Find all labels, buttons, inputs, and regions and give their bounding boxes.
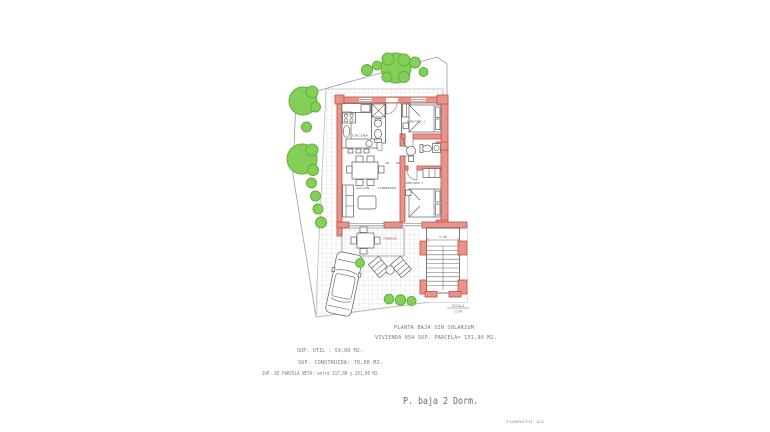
toilet2 [423, 145, 432, 152]
floor-plan-drawing: DORMITORIO 1 SALON - COMEDOR COCINA DORM… [0, 0, 770, 432]
kitchen-label: COCINA [352, 134, 368, 138]
bedroom2-label: DORMITORIO 2 [405, 181, 423, 185]
scale-note: ESCALA 1/50 [447, 304, 469, 314]
sofa [343, 185, 354, 217]
plate-label: P. baja 2 Dorm. [403, 396, 478, 407]
wall-bedroom1-south [413, 134, 441, 139]
living-label: SALON - COMEDOR [356, 186, 396, 190]
scale-value: 1/50 [454, 310, 462, 314]
sup-construida: SUP. CONSTRUIDA: 70,00 M2. [298, 360, 383, 366]
terrace-table [357, 233, 374, 248]
wardrobe2 [423, 169, 440, 178]
wall-east [441, 97, 448, 228]
dining-table [352, 162, 378, 179]
wall-hall-east-lower [400, 156, 405, 222]
terrace-label: TERRAZA [383, 237, 397, 241]
sheet-code: FORMATO A3 [506, 420, 544, 424]
annotation-block: PLANTA BAJA SIN SOLARIUM VIVIENDA 054 SU… [262, 325, 544, 424]
garden-table [386, 266, 394, 274]
coffee-table [358, 196, 376, 209]
title-line2: VIVIENDA 054 SUP. PARCELA= 151,90 M2. [375, 335, 497, 341]
toilet1 [375, 129, 382, 138]
stairs-dimension: 4,00 [439, 235, 447, 239]
washbasin2 [406, 146, 415, 155]
floor-plan-page: DORMITORIO 1 SALON - COMEDOR COCINA DORM… [0, 0, 770, 432]
sup-parcela-neta: SUP. DE PARCELA NETA: entre 117,00 y 201… [262, 371, 380, 377]
title-line1: PLANTA BAJA SIN SOLARIUM [394, 325, 475, 331]
sup-util: SUP. UTIL : 59,00 M2. [297, 348, 363, 354]
stove [343, 113, 356, 123]
washbasin1 [374, 120, 381, 127]
bedroom1-label: DORMITORIO 1 [407, 120, 425, 124]
scale-label: ESCALA [452, 304, 464, 308]
wall-west [337, 97, 342, 228]
